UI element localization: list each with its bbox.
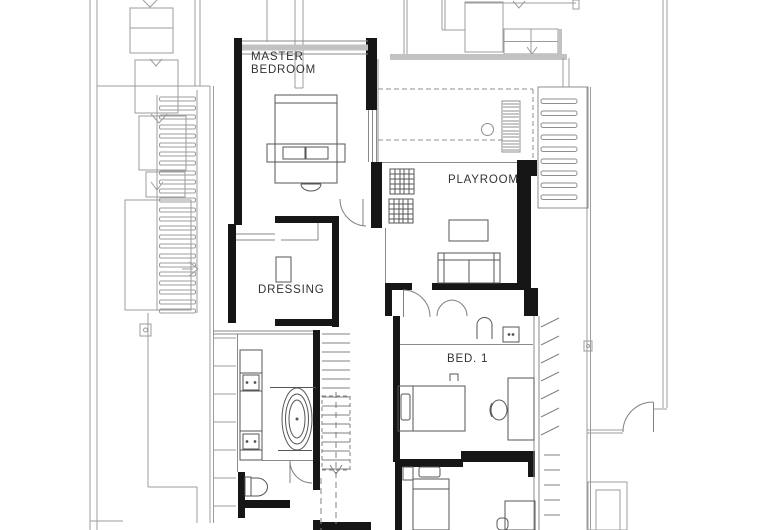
label-marker <box>450 374 458 381</box>
bathtub <box>270 388 316 451</box>
vanity <box>240 350 262 460</box>
floor-grille-2 <box>389 199 413 223</box>
floor-plan-page: MASTERBEDROOM PLAYROOM DRESSING BED. 1 <box>0 0 765 530</box>
toilet <box>245 477 268 496</box>
hand-basin <box>477 318 492 339</box>
lower-bedroom-furniture <box>403 467 535 530</box>
skylight-circle <box>482 124 494 136</box>
dressing-label: DRESSING <box>258 284 324 297</box>
floor-plan-drawing <box>0 0 765 530</box>
appliance-box <box>503 327 519 342</box>
louvered-roof-box <box>538 87 588 208</box>
bed1-label: BED. 1 <box>447 353 488 366</box>
master-bathroom-fixtures <box>240 350 316 496</box>
desk <box>508 378 534 440</box>
floor-grille-1 <box>390 169 414 194</box>
shared-bathroom-fixtures <box>477 318 519 342</box>
master-bedroom-furniture <box>267 95 345 191</box>
staircase <box>321 334 350 530</box>
bed1-furniture <box>398 374 534 440</box>
chair <box>491 400 507 420</box>
dressing-furniture <box>276 257 291 282</box>
playroom-label: PLAYROOM <box>448 174 519 187</box>
void-skylight-zone <box>378 59 533 162</box>
ottoman <box>301 184 321 191</box>
door-swings <box>290 199 654 483</box>
sofa <box>438 253 500 283</box>
pillow <box>419 467 440 477</box>
double-bed <box>275 95 337 183</box>
single-bed <box>398 386 465 431</box>
coffee-table <box>449 220 488 241</box>
pillow <box>401 394 410 420</box>
master-bedroom-label: MASTERBEDROOM <box>251 51 316 77</box>
stool <box>497 518 508 530</box>
ladder-strip-lower-left <box>214 338 236 506</box>
louver-strip-left <box>140 90 197 336</box>
nightstand <box>403 467 413 480</box>
void-ladder <box>502 101 520 152</box>
dressing-island <box>276 257 291 282</box>
single-bed <box>413 479 449 530</box>
desk <box>505 501 535 530</box>
balcony-hatching <box>541 318 592 515</box>
master-bedroom-label-line1: MASTER <box>251 51 304 63</box>
master-bedroom-label-line2: BEDROOM <box>251 64 316 76</box>
